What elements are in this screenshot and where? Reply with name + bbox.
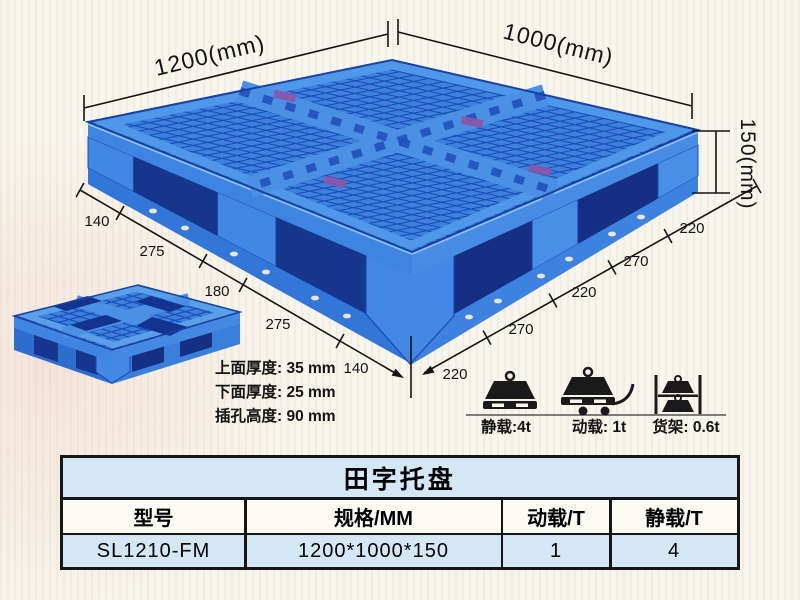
chain-left-2: 180 bbox=[204, 283, 229, 300]
table-header-static-load: 静载/T bbox=[612, 500, 737, 533]
chain-arrow bbox=[392, 369, 404, 378]
chain-left-0: 140 bbox=[84, 213, 109, 230]
table-header-spec: 规格/MM bbox=[247, 500, 501, 533]
chain-left-1: 275 bbox=[139, 243, 164, 260]
cell-model: SL1210-FM bbox=[63, 535, 244, 567]
chain-left-4: 140 bbox=[343, 360, 368, 377]
chain-right-1: 270 bbox=[508, 321, 533, 338]
rack-load-icon bbox=[656, 375, 700, 414]
dynamic-load-label: 动载: 1t bbox=[572, 418, 626, 436]
cell-dynamic-load: 1 bbox=[503, 535, 609, 567]
dynamic-load-icon bbox=[561, 368, 633, 416]
chain-right-3: 270 bbox=[623, 253, 648, 270]
cell-spec: 1200*1000*150 bbox=[247, 535, 501, 567]
static-load-label: 静载:4t bbox=[481, 417, 531, 436]
static-load-icon bbox=[483, 372, 537, 409]
chain-right-2: 220 bbox=[571, 284, 596, 301]
spec-table: 田字托盘 型号 规格/MM 动载/T 静载/T SL1210-FM 1200*1… bbox=[60, 455, 740, 570]
page: { "colors": { "pallet_blue": "#2e72d4", … bbox=[0, 0, 800, 600]
chain-right-0: 220 bbox=[442, 366, 467, 383]
chain-left-3: 275 bbox=[265, 316, 290, 333]
dim-length-label: 1200(mm) bbox=[152, 29, 268, 81]
thickness-notes: 上面厚度: 35 mm 下面厚度: 25 mm 插孔高度: 90 mm bbox=[215, 358, 336, 425]
table-header-model: 型号 bbox=[63, 500, 244, 533]
table-header-dynamic-load: 动载/T bbox=[503, 500, 609, 533]
cell-static-load: 4 bbox=[612, 535, 737, 567]
rack-load-label: 货架: 0.6t bbox=[652, 417, 719, 436]
table-title: 田字托盘 bbox=[63, 458, 737, 497]
note-top-thickness: 上面厚度: 35 mm bbox=[215, 358, 336, 377]
note-slot-height: 插孔高度: 90 mm bbox=[215, 406, 336, 425]
chain-right-4: 220 bbox=[679, 220, 704, 237]
chain-arrow bbox=[422, 366, 435, 375]
note-bottom-thickness: 下面厚度: 25 mm bbox=[215, 382, 336, 401]
load-capacity-icons: 静载:4t 动载: 1t 货架: 0.6t bbox=[466, 368, 726, 436]
